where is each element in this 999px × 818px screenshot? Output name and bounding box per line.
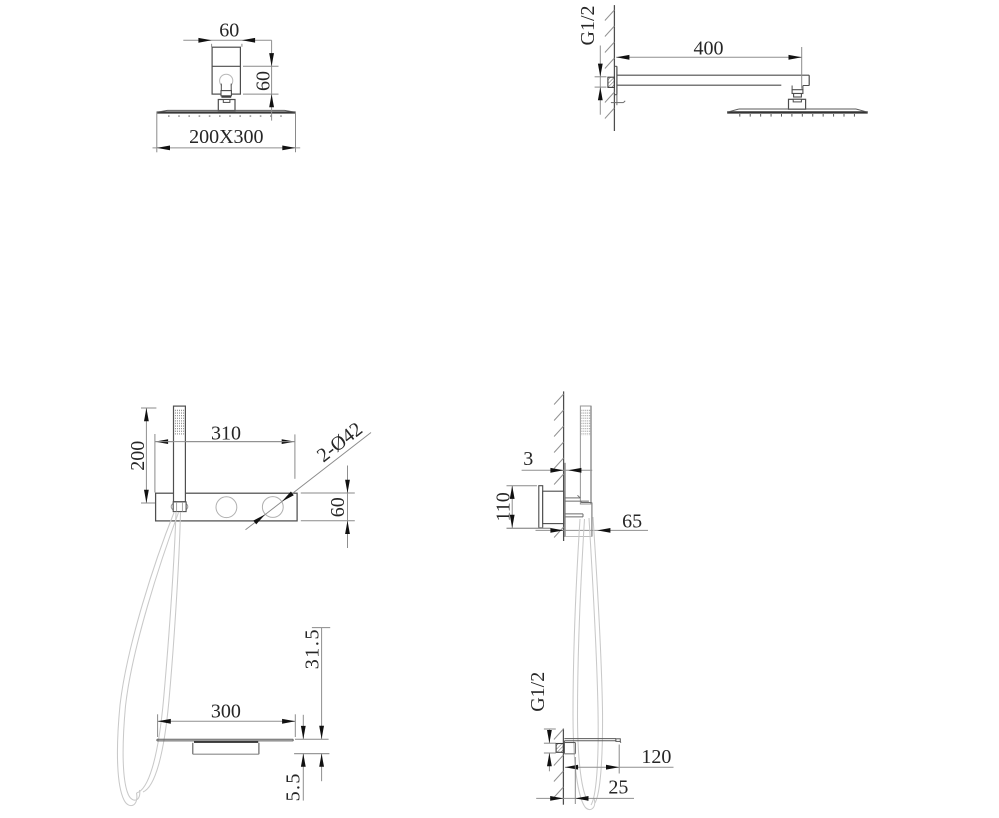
- svg-text:200X300: 200X300: [189, 126, 263, 148]
- svg-text:200: 200: [127, 441, 149, 471]
- svg-text:60: 60: [252, 71, 274, 91]
- svg-text:25: 25: [608, 777, 628, 799]
- svg-text:5.5: 5.5: [282, 772, 304, 801]
- svg-text:60: 60: [219, 20, 239, 42]
- svg-text:310: 310: [211, 422, 241, 444]
- svg-text:300: 300: [211, 700, 241, 722]
- svg-text:3: 3: [523, 448, 533, 470]
- svg-text:60: 60: [327, 497, 349, 517]
- svg-text:31.5: 31.5: [301, 628, 323, 669]
- svg-text:G1/2: G1/2: [577, 6, 599, 46]
- svg-text:400: 400: [694, 38, 724, 60]
- svg-text:120: 120: [641, 746, 671, 768]
- svg-text:G1/2: G1/2: [527, 672, 549, 712]
- svg-text:110: 110: [492, 492, 514, 521]
- svg-text:65: 65: [622, 511, 642, 533]
